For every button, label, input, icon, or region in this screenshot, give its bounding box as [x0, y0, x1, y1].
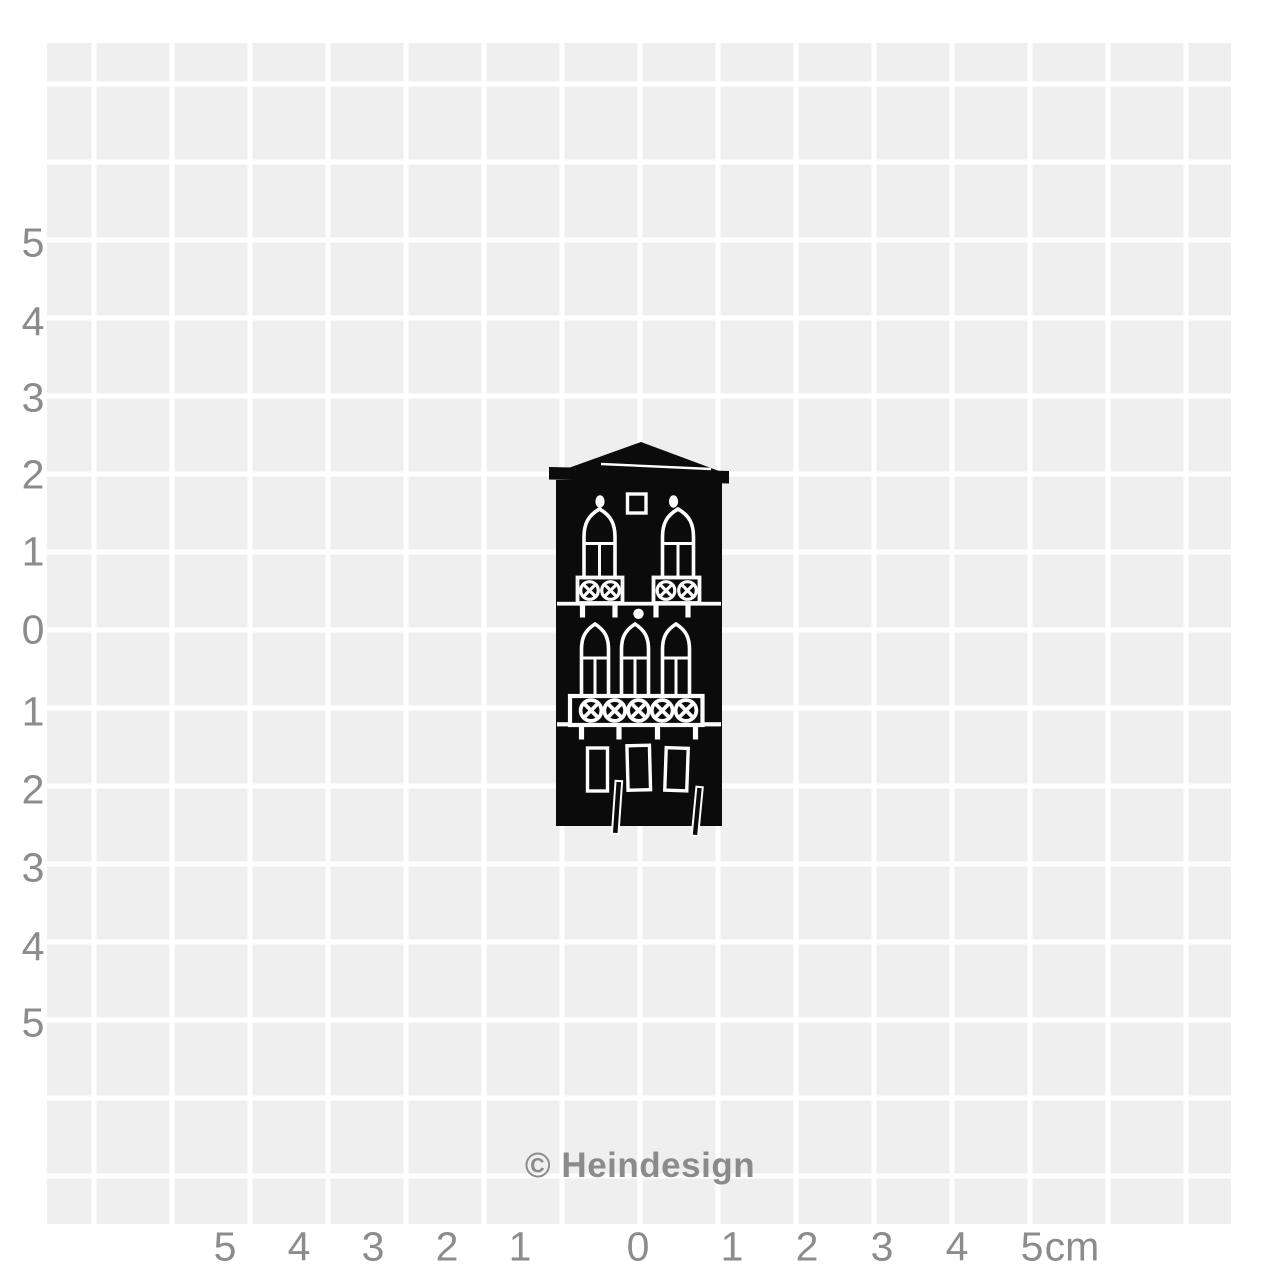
left-axis-label-9: 4	[22, 927, 45, 968]
bottom-axis-label-0: 5	[214, 1227, 237, 1268]
ground-window	[665, 748, 688, 791]
left-axis-label-0: 5	[22, 223, 45, 264]
bottom-axis-label-7: 2	[796, 1227, 819, 1268]
ornament-dot	[595, 495, 604, 507]
gothic-window	[622, 624, 649, 695]
left-axis-label-3: 2	[22, 455, 45, 496]
ground-window	[627, 745, 651, 790]
left-axis-label-10: 5	[22, 1003, 45, 1044]
ornament-dot	[633, 609, 643, 619]
ground-window	[588, 748, 608, 791]
left-axis-label-7: 2	[22, 770, 45, 811]
bottom-axis-label-9: 4	[946, 1227, 969, 1268]
attic-square-window	[628, 494, 647, 513]
bottom-axis-label-3: 2	[436, 1227, 459, 1268]
bottom-axis-label-10: 5	[1021, 1227, 1044, 1268]
bottom-axis-label-4: 1	[509, 1227, 532, 1268]
left-axis-label-1: 4	[22, 302, 45, 343]
stamp-illustration	[546, 432, 738, 842]
bottom-axis-unit-label: cm	[1045, 1227, 1100, 1268]
watermark-text: © Heindesign	[525, 1146, 755, 1186]
gothic-window	[663, 624, 690, 695]
left-axis-label-2: 3	[22, 378, 45, 419]
bottom-axis-label-5: 0	[627, 1227, 650, 1268]
bottom-axis-label-2: 3	[362, 1227, 385, 1268]
gothic-window	[582, 624, 609, 695]
left-axis-label-5: 0	[22, 610, 45, 651]
bottom-axis-label-8: 3	[871, 1227, 894, 1268]
gothic-window	[584, 509, 615, 578]
left-axis-label-6: 1	[22, 692, 45, 733]
middle-floor	[570, 609, 703, 740]
bottom-axis-label-6: 1	[721, 1227, 744, 1268]
left-axis-label-4: 1	[22, 532, 45, 573]
left-axis-label-8: 3	[22, 848, 45, 889]
gothic-window	[663, 509, 694, 578]
ornament-dot	[669, 495, 678, 507]
bottom-axis-label-1: 4	[288, 1227, 311, 1268]
roof	[549, 442, 729, 484]
